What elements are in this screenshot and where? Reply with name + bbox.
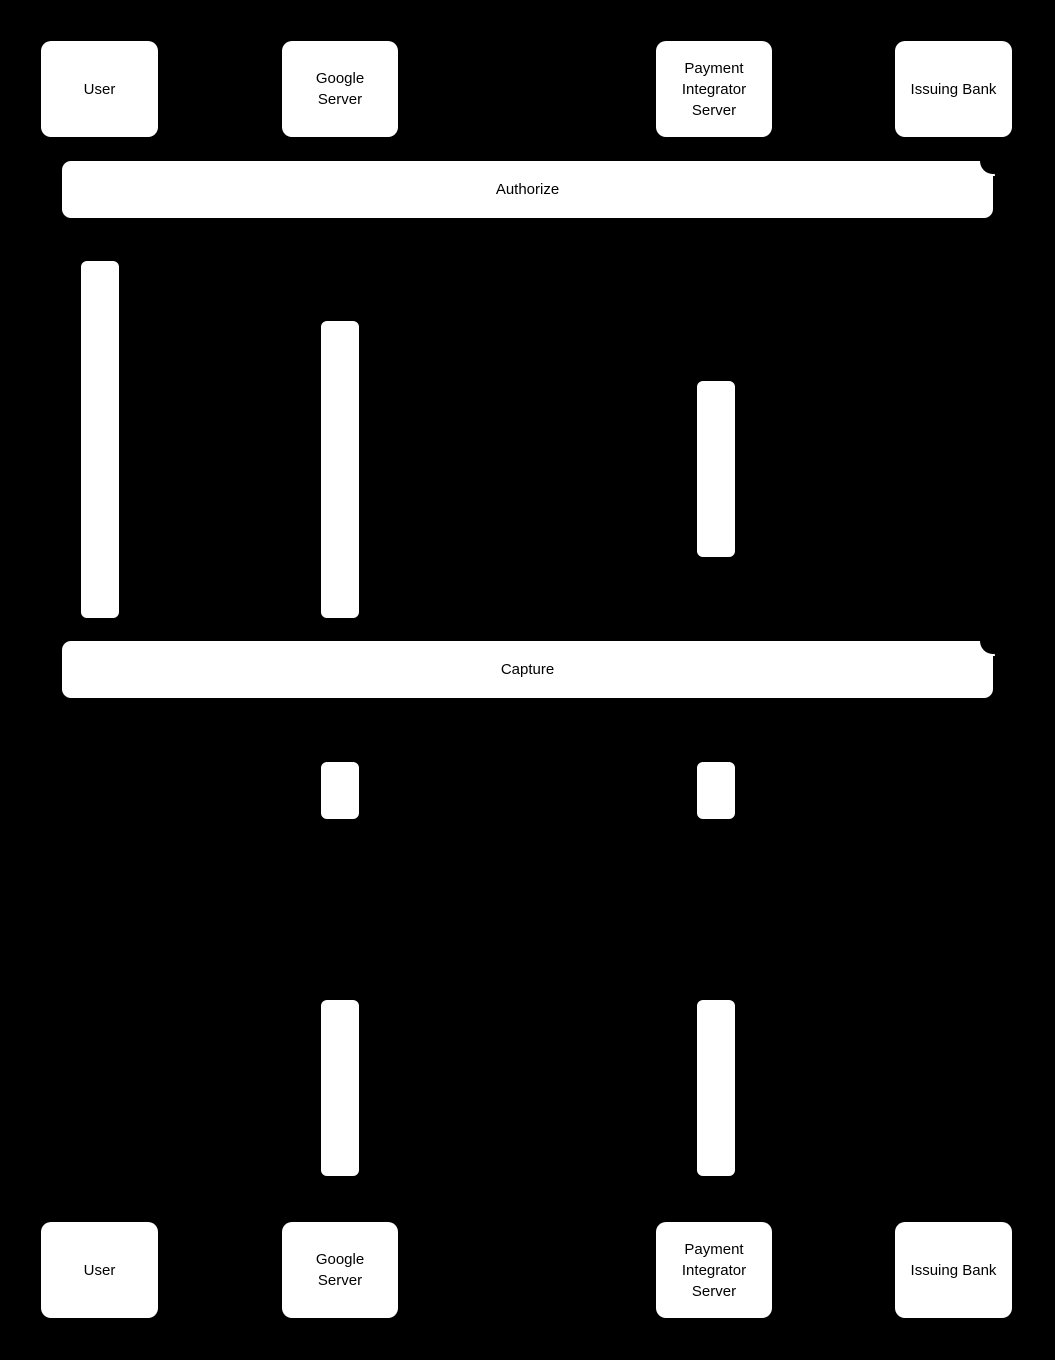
- actor-label-user: User: [84, 1260, 116, 1281]
- frame-label-capture: Capture: [501, 661, 554, 678]
- activation-bar-payment-integrator-capture-2: [697, 1000, 735, 1176]
- actor-box-issuing-bank-bottom: Issuing Bank: [895, 1222, 1012, 1318]
- sequence-diagram: User Google Server Payment Integrator Se…: [0, 0, 1055, 1360]
- actor-box-user-bottom: User: [41, 1222, 158, 1318]
- activation-bar-google-server-authorize: [321, 321, 359, 618]
- activation-bar-payment-integrator-capture-1: [697, 762, 735, 819]
- folded-corner-icon: [969, 634, 999, 664]
- actor-label-google-server: Google Server: [302, 68, 378, 110]
- frame-authorize: Authorize: [62, 161, 993, 218]
- actor-box-google-server-top: Google Server: [282, 41, 398, 137]
- actor-box-user-top: User: [41, 41, 158, 137]
- actor-label-user: User: [84, 79, 116, 100]
- activation-bar-google-server-capture-1: [321, 762, 359, 819]
- actor-box-issuing-bank-top: Issuing Bank: [895, 41, 1012, 137]
- actor-label-payment-integrator-server: Payment Integrator Server: [672, 58, 756, 121]
- actor-box-payment-integrator-server-bottom: Payment Integrator Server: [656, 1222, 772, 1318]
- frame-capture: Capture: [62, 641, 993, 698]
- actor-label-issuing-bank: Issuing Bank: [911, 1260, 997, 1281]
- activation-bar-payment-integrator-authorize: [697, 381, 735, 557]
- actor-label-issuing-bank: Issuing Bank: [911, 79, 997, 100]
- actor-label-google-server: Google Server: [302, 1249, 378, 1291]
- frame-label-authorize: Authorize: [496, 181, 559, 198]
- actor-box-payment-integrator-server-top: Payment Integrator Server: [656, 41, 772, 137]
- actor-label-payment-integrator-server: Payment Integrator Server: [672, 1239, 756, 1302]
- activation-bar-google-server-capture-2: [321, 1000, 359, 1176]
- activation-bar-user-authorize: [81, 261, 119, 618]
- actor-box-google-server-bottom: Google Server: [282, 1222, 398, 1318]
- folded-corner-icon: [969, 154, 999, 184]
